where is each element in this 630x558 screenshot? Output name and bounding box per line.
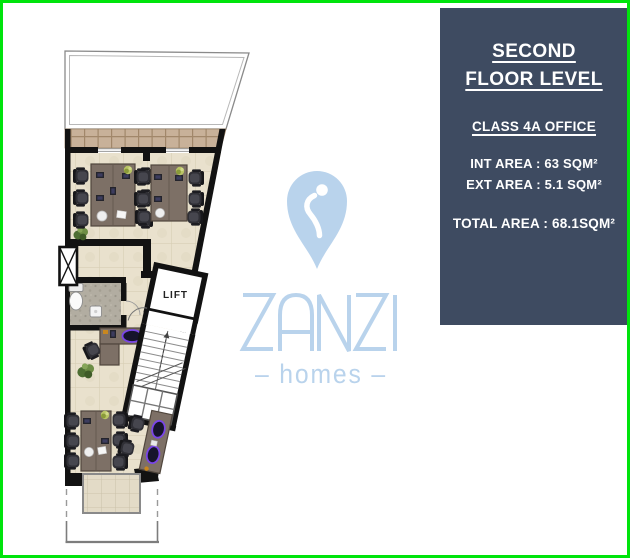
service-shaft	[60, 247, 78, 285]
image-frame: LIFT	[0, 0, 630, 558]
roof-terrace-outline	[65, 51, 249, 129]
desk-cluster-2	[134, 165, 204, 226]
terrace-tiles	[65, 129, 226, 148]
floor-level-title-line1: SECOND	[492, 38, 576, 66]
area-details: INT AREA : 63 SQM² EXT AREA : 5.1 SQM²	[466, 154, 602, 196]
total-area: TOTAL AREA : 68.1SQM²	[453, 216, 615, 231]
page: { "panel": { "title_line1": "SECOND", "t…	[0, 0, 630, 558]
floor-level-title: SECOND FLOOR LEVEL	[465, 38, 602, 93]
balcony	[83, 474, 140, 513]
lift-label: LIFT	[163, 290, 188, 301]
internal-area: INT AREA : 63 SQM²	[466, 154, 602, 175]
office-class-label: CLASS 4A OFFICE	[472, 119, 596, 134]
external-area: EXT AREA : 5.1 SQM²	[466, 175, 602, 196]
desk-cluster-3	[64, 411, 128, 471]
sink-icon	[90, 306, 102, 317]
toilet-icon	[69, 284, 83, 311]
info-panel: SECOND FLOOR LEVEL CLASS 4A OFFICE INT A…	[440, 8, 628, 325]
floor-level-title-line2: FLOOR LEVEL	[465, 66, 602, 94]
